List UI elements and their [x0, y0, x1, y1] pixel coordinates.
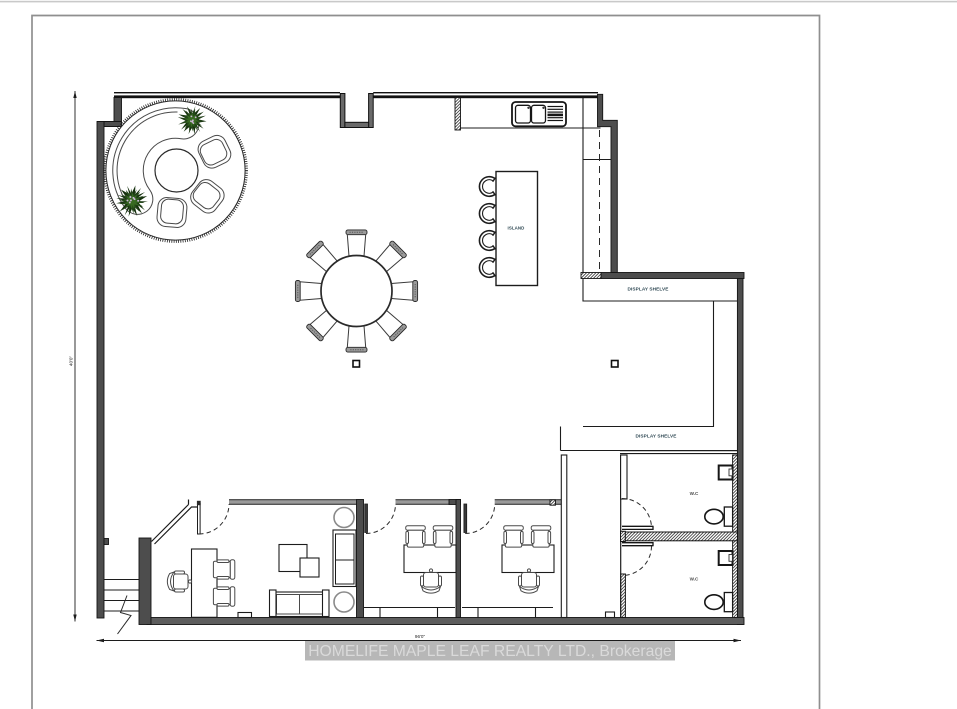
svg-text:HOMELIFE MAPLE LEAF REALTY LTD: HOMELIFE MAPLE LEAF REALTY LTD., Brokera…: [308, 643, 672, 660]
svg-text:96'0": 96'0": [415, 634, 426, 639]
svg-text:ISLAND: ISLAND: [508, 226, 525, 231]
svg-text:W.C: W.C: [690, 577, 699, 582]
svg-text:40'0": 40'0": [69, 356, 74, 367]
svg-text:DISPLAY SHELVE: DISPLAY SHELVE: [636, 434, 677, 439]
svg-text:DISPLAY SHELVE: DISPLAY SHELVE: [628, 287, 669, 292]
svg-text:W.C: W.C: [690, 491, 699, 496]
